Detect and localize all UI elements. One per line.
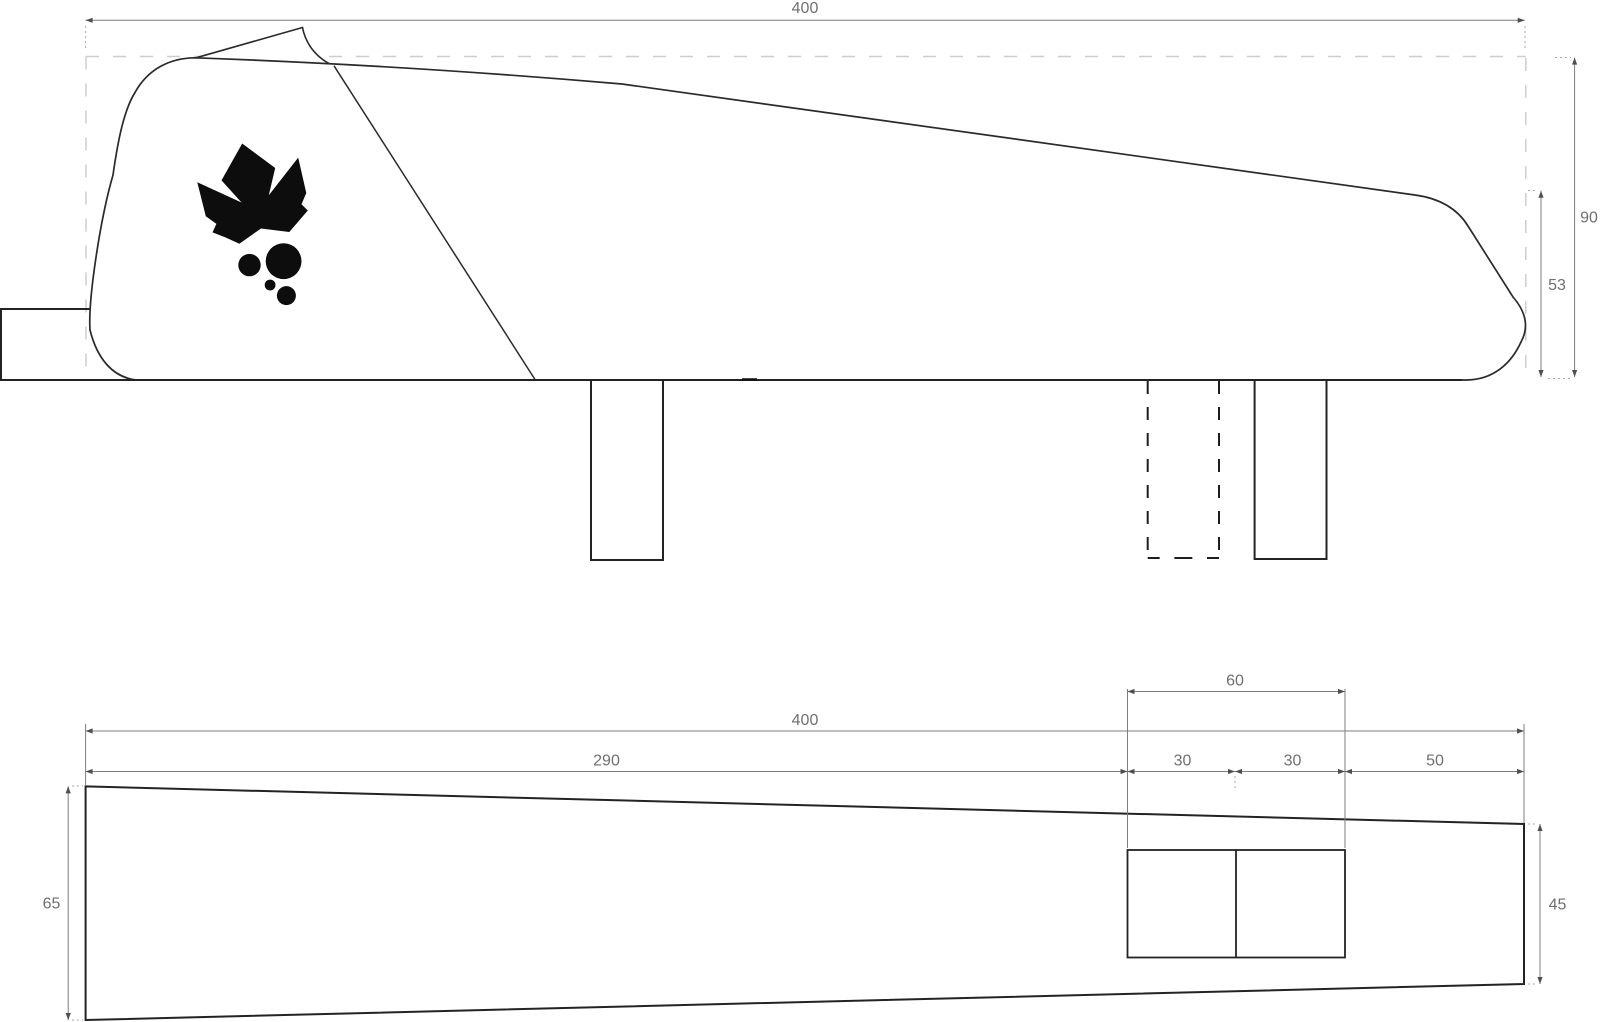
svg-text:90: 90 <box>1580 210 1598 227</box>
svg-text:50: 50 <box>1426 753 1444 770</box>
svg-text:290: 290 <box>593 753 620 770</box>
svg-text:53: 53 <box>1548 277 1566 294</box>
svg-text:65: 65 <box>43 896 61 913</box>
svg-text:400: 400 <box>792 712 819 729</box>
svg-text:45: 45 <box>1549 897 1567 914</box>
svg-text:30: 30 <box>1284 753 1302 770</box>
svg-text:30: 30 <box>1174 753 1192 770</box>
svg-text:60: 60 <box>1226 673 1244 690</box>
svg-text:400: 400 <box>792 0 819 17</box>
